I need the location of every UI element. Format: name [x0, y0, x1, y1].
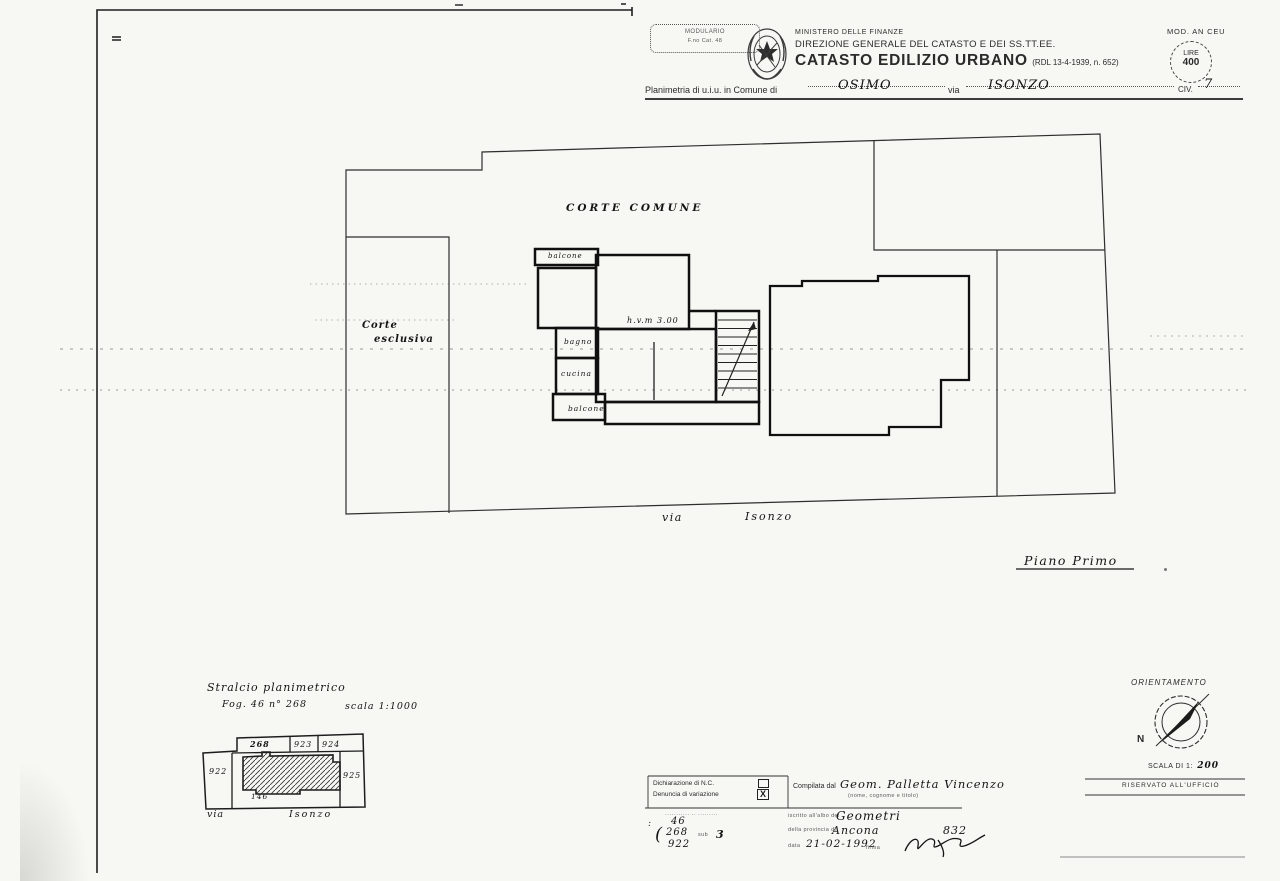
prov-value: Ancona: [832, 824, 879, 837]
north-label: N: [1137, 734, 1144, 745]
directorate-label: DIREZIONE GENERALE DEL CATASTO E DEI SS.…: [795, 39, 1056, 50]
floor-label: Piano Primo: [1024, 553, 1118, 568]
scan-shadow: [20, 760, 90, 881]
brace-mark: (: [655, 824, 663, 845]
signature-mark: [905, 835, 985, 857]
page-frame: [97, 5, 632, 873]
parcel-146: 146: [251, 792, 268, 801]
prov-label: della provincia di: [788, 827, 836, 833]
civ-value: 7: [1204, 77, 1213, 92]
albo-value: Geometri: [836, 809, 901, 823]
compass-icon: [1155, 694, 1209, 748]
comune-value: OSIMO: [838, 78, 892, 93]
street-via-label: via: [662, 511, 683, 524]
modulario-stamp: MODULARIO F.no Cat. 48: [650, 24, 760, 53]
planimetria-label: Planimetria di u.i.u. in Comune di: [645, 85, 777, 95]
room-bagno: bagno: [564, 337, 592, 346]
plot-boundary: [346, 134, 1115, 514]
room-balcone-bottom: balcone: [568, 404, 605, 413]
modulario-line1: MODULARIO: [651, 28, 759, 37]
albo-label: iscritto all'albo dei: [788, 813, 840, 819]
colon-mark: :: [648, 819, 652, 829]
plan-scale-row: SCALA DI 1: 200: [1148, 755, 1219, 773]
document-title-row: CATASTO EDILIZIO URBANO (RDL 13-4-1939, …: [795, 52, 1119, 70]
stralcio-street-name: Isonzo: [289, 809, 332, 820]
document-title: CATASTO EDILIZIO URBANO: [795, 52, 1028, 69]
scan-artifacts: [60, 284, 1246, 390]
mod-code-label: MOD. AN CEU: [1167, 27, 1225, 36]
reserved-office-label: RISERVATO ALL'UFFICIO: [1122, 782, 1220, 789]
room-balcone-top: balcone: [548, 252, 583, 260]
scan-speck: [621, 3, 626, 5]
room-height-note: h.v.m 3.00: [627, 316, 679, 325]
register-number: 832: [943, 824, 967, 837]
variation-checkbox: X: [757, 789, 769, 800]
scan-lineart-layer: [0, 0, 1280, 881]
parcel-923: 923: [294, 740, 312, 749]
hatched-building: [243, 752, 340, 794]
stralcio-map: [203, 734, 365, 809]
stralcio-sheet: Fog. 46 n° 268: [222, 699, 307, 710]
stralcio-street-via: via: [207, 809, 224, 820]
corte-esclusiva-label-1: Corte: [362, 320, 398, 331]
firma-label: firma: [866, 845, 880, 851]
parcel-268: 268: [250, 739, 270, 749]
stralcio-scale: scala 1:1000: [345, 701, 418, 712]
mappale-value: 268: [666, 827, 688, 838]
parcel-924: 924: [322, 740, 340, 749]
sub-value: 3: [716, 828, 725, 841]
ministry-label: MINISTERO DELLE FINANZE: [795, 29, 904, 36]
compiled-by-note: (nome, cognome e titolo): [848, 793, 918, 799]
room-cucina: cucina: [561, 369, 592, 378]
civ-label: CIV.: [1178, 85, 1193, 94]
document-title-ref: (RDL 13-4-1939, n. 652): [1032, 58, 1118, 67]
via-label: via: [948, 85, 960, 95]
parcel-925: 925: [343, 771, 361, 780]
compiled-by-label: Compilata dal: [793, 783, 836, 790]
sub-label: sub: [698, 832, 708, 838]
parcel-922: 922: [209, 767, 227, 776]
street-name-label: Isonzo: [745, 510, 793, 523]
via-value: ISONZO: [988, 78, 1050, 93]
declaration-label: Dichiarazione di N.C.: [653, 780, 714, 787]
modulario-line2: F.no Cat. 48: [651, 37, 759, 46]
corte-comune-label: CORTE COMUNE: [566, 202, 703, 214]
stralcio-title: Stralcio planimetrico: [207, 681, 346, 694]
plan-scale-prefix: SCALA DI 1:: [1148, 763, 1193, 770]
compiled-by-value: Geom. Palletta Vincenzo: [840, 777, 1005, 791]
stairs: [654, 320, 757, 400]
mappale2-value: 922: [668, 839, 690, 850]
declaration-checkbox: [758, 779, 769, 788]
revenue-stamp-currency: LIRE: [1171, 50, 1211, 57]
plan-scale-value: 200: [1197, 761, 1219, 771]
foglio-value: 46: [671, 816, 686, 827]
document-page: MODULARIO F.no Cat. 48 MINISTERO DELLE F…: [0, 0, 1280, 881]
neighbor-building: [770, 276, 969, 435]
date-label: data: [788, 843, 800, 849]
variation-label: Denuncia di variazione: [653, 791, 719, 798]
floor-plan-drawing: [346, 134, 1115, 514]
revenue-stamp-value: 400: [1171, 57, 1211, 68]
corte-esclusiva-label-2: esclusiva: [374, 334, 434, 345]
scan-speck: [1164, 568, 1167, 571]
orientation-title: ORIENTAMENTO: [1131, 678, 1207, 687]
